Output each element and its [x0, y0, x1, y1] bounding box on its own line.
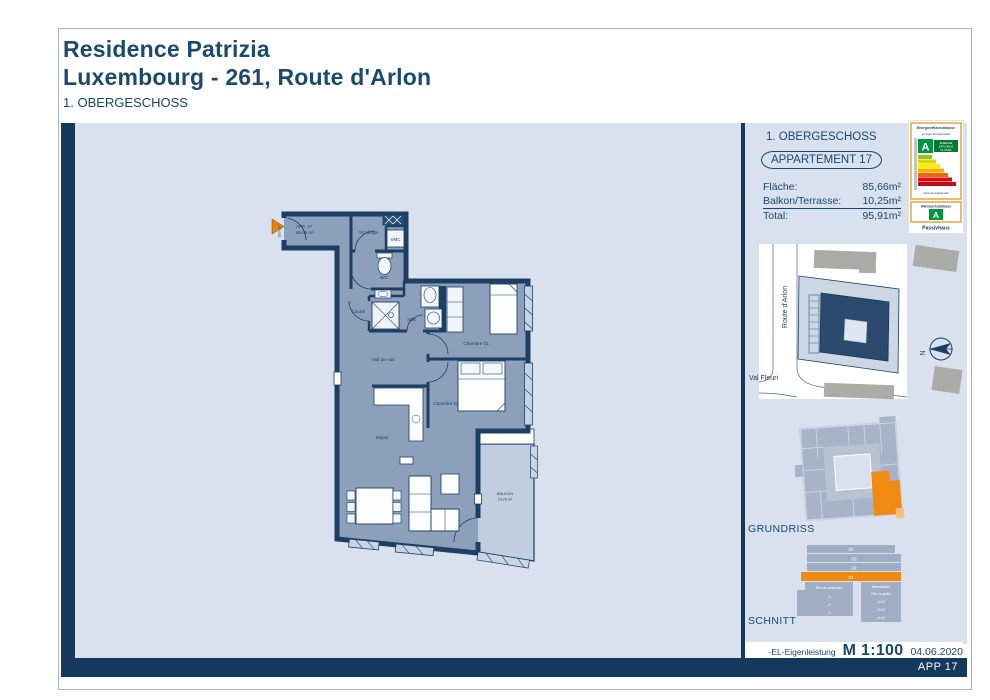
- balcony-door-gap: [476, 518, 479, 542]
- heat-title: Wärmeschutzklasse: [921, 205, 952, 209]
- note-label: -EL-Eigenleistung: [769, 647, 836, 657]
- room-label-sdb: SDB: [407, 317, 416, 322]
- site-plan: Route d'Arlon Val Fleuri N: [745, 241, 967, 401]
- room-label-wc: WC: [380, 275, 388, 280]
- entry-door-code: E03-S17: [278, 224, 282, 237]
- title-block: Residence Patrizia Luxembourg - 261, Rou…: [63, 35, 431, 110]
- street-label-val-fleuri: Val Fleuri: [749, 375, 778, 382]
- floorplan-panel: APP. 17 85.66 m² E03-S17 Stockage VMC WC…: [61, 123, 741, 658]
- level-label: -2 1/2: [877, 608, 885, 612]
- energy-letter: A: [922, 142, 930, 154]
- entry-area-label: 85.66 m²: [296, 230, 314, 235]
- floor-heading: 1. OBERGESCHOSS: [63, 95, 431, 110]
- sidebar-floor-label: 1. OBERGESCHOSS: [766, 131, 877, 143]
- grundriss-caption: GRUNDRISS: [748, 523, 815, 535]
- energy-klasse-line: KLASSE: [941, 148, 952, 152]
- grundriss-miniplan: [795, 411, 915, 529]
- document-page: Residence Patrizia Luxembourg - 261, Rou…: [0, 0, 990, 700]
- toilet-bowl: [378, 258, 391, 275]
- area-value: 10,25m²: [862, 194, 901, 208]
- area-label: Fläche:: [763, 180, 797, 194]
- energy-label: Energieeffizienzklasse geringer Energieb…: [909, 121, 963, 233]
- floor-label: 03: [851, 557, 857, 562]
- room-label-vmc: VMC: [391, 237, 401, 242]
- level-label: -1: [827, 595, 830, 599]
- street-label-route-arlon: Route d'Arlon: [782, 286, 789, 328]
- entry-app-label: APP. 17: [296, 224, 312, 229]
- area-value: 85,66m²: [862, 180, 901, 194]
- level-label: -3 1/2: [877, 616, 885, 620]
- room-label-couloir: Couloir: [352, 309, 366, 314]
- floor-label: 04: [848, 547, 854, 552]
- floorplan-canvas: APP. 17 85.66 m² E03-S17 Stockage VMC WC…: [75, 123, 741, 658]
- site-building: [809, 293, 889, 361]
- schnitt-caption: SCHNITT: [748, 615, 796, 627]
- level-label: -1 1/2: [877, 600, 885, 604]
- ventilation-shaft: [383, 215, 404, 225]
- energy-label-card: Energieeffizienzklasse geringer Energieb…: [909, 121, 963, 233]
- scale-row: -EL-Eigenleistung M 1:100 04.06.2020: [745, 642, 963, 658]
- energy-low-text: geringer Energiebedarf: [922, 132, 951, 136]
- sheet-id-bar: APP 17: [61, 658, 967, 677]
- room-label-balkon-area: 10,25 m²: [498, 498, 513, 502]
- sofa: [409, 476, 431, 531]
- floor-label: 02: [851, 566, 857, 571]
- project-title: Residence Patrizia: [63, 35, 431, 63]
- table-row: Balkon/Terrasse: 10,25m²: [763, 194, 901, 209]
- table-row: Total: 95,91m²: [763, 209, 901, 223]
- level-label: -2: [827, 603, 830, 607]
- floor-label: 01: [848, 575, 854, 580]
- room-label-balkon: BALKON: [497, 491, 513, 496]
- apartment-badge: APPARTEMENT 17: [761, 151, 882, 169]
- area-label: Balkon/Terrasse:: [763, 194, 841, 208]
- balcony-area: [478, 444, 534, 561]
- energy-title: Energieeffizienzklasse: [917, 126, 955, 130]
- compass-n-label: N: [920, 350, 927, 355]
- sheet-id-label: APP 17: [918, 661, 958, 673]
- energy-high-text: hoher Energiebedarf: [923, 191, 949, 195]
- side-table: [441, 474, 459, 494]
- washbasin: [421, 286, 439, 307]
- date-label: 04.06.2020: [910, 646, 963, 658]
- project-address: Luxembourg - 261, Route d'Arlon: [63, 63, 431, 91]
- room-label-chambre1: Chambre 01: [463, 341, 489, 346]
- heat-letter: A: [933, 210, 939, 220]
- floorplan-drawing: APP. 17 85.66 m² E03-S17 Stockage VMC WC…: [75, 123, 741, 658]
- level-label: Rez-de-jardin: [871, 592, 890, 596]
- room-label-hall: Hall de nuit: [372, 357, 396, 362]
- room-label-stockage: Stockage: [359, 230, 379, 235]
- area-label: Total:: [763, 209, 788, 223]
- level-label: Intermédiaire: [872, 585, 891, 589]
- level-label: -3: [827, 611, 830, 615]
- area-value: 95,91m²: [862, 209, 901, 223]
- schnitt-diagram: 04 03 02 01 Rez-de-chaussée -1 -2 -3 Int…: [795, 543, 915, 625]
- wardrobe: [447, 287, 463, 332]
- compass-north-icon: N: [920, 338, 953, 360]
- table-row: Fläche: 85,66m²: [763, 180, 901, 194]
- highlighted-balcony: [896, 508, 905, 519]
- room-label-sejour: Séjour: [375, 435, 389, 440]
- passivhaus-label: Passivhaus: [922, 226, 950, 232]
- drawing-sheet: Residence Patrizia Luxembourg - 261, Rou…: [58, 28, 972, 690]
- room-label-chambre2: Chambre 02: [433, 401, 459, 406]
- area-table: Fläche: 85,66m² Balkon/Terrasse: 10,25m²…: [763, 180, 901, 223]
- level-label: Rez-de-chaussée: [816, 586, 843, 590]
- dining-table: [356, 488, 393, 524]
- single-bed: [490, 284, 517, 334]
- courtyard: [834, 454, 872, 490]
